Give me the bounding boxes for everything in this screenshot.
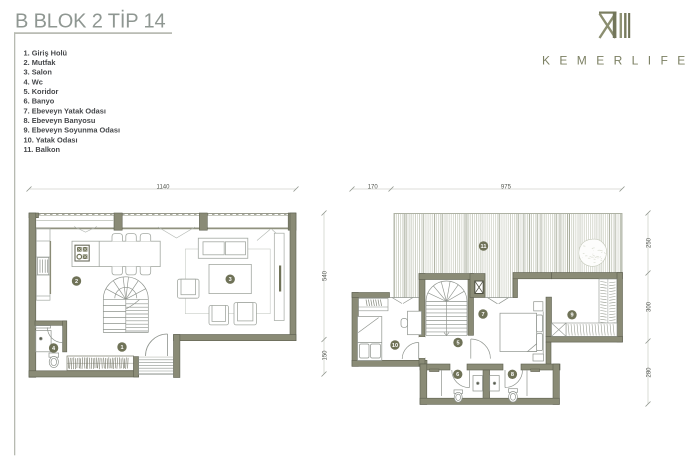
svg-text:250: 250: [646, 237, 652, 248]
svg-text:2: 2: [75, 279, 78, 285]
svg-text:5: 5: [456, 340, 459, 346]
svg-text:150: 150: [322, 350, 328, 361]
svg-text:1: 1: [120, 345, 123, 351]
svg-text:2. Mutfak: 2. Mutfak: [24, 58, 57, 67]
svg-text:6: 6: [456, 372, 459, 378]
svg-text:4. Wc: 4. Wc: [24, 77, 43, 86]
svg-text:B BLOK 2 TİP 14: B BLOK 2 TİP 14: [15, 9, 165, 32]
svg-text:9. Ebeveyn Soyunma Odası: 9. Ebeveyn Soyunma Odası: [24, 126, 121, 135]
svg-text:8. Ebeveyn Banyosu: 8. Ebeveyn Banyosu: [24, 116, 96, 125]
svg-text:3. Salon: 3. Salon: [24, 68, 53, 77]
svg-text:7. Ebeveyn Yatak Odası: 7. Ebeveyn Yatak Odası: [24, 106, 106, 115]
svg-text:300: 300: [646, 301, 652, 312]
svg-text:KEMERLIFE: KEMERLIFE: [542, 54, 695, 68]
svg-text:3: 3: [229, 277, 232, 283]
svg-text:5. Koridor: 5. Koridor: [24, 87, 59, 96]
svg-text:10. Yatak Odası: 10. Yatak Odası: [24, 135, 78, 144]
svg-text:8: 8: [511, 372, 514, 378]
svg-text:975: 975: [501, 184, 512, 190]
svg-text:7: 7: [481, 312, 484, 318]
svg-text:11: 11: [481, 244, 487, 250]
svg-text:280: 280: [646, 367, 652, 378]
svg-text:1. Giriş Holü: 1. Giriş Holü: [24, 48, 68, 57]
svg-text:9: 9: [570, 313, 573, 319]
svg-text:6. Banyo: 6. Banyo: [24, 97, 55, 106]
svg-text:11. Balkon: 11. Balkon: [24, 145, 61, 154]
svg-text:540: 540: [322, 270, 328, 281]
svg-text:170: 170: [368, 184, 379, 190]
svg-text:1140: 1140: [157, 184, 171, 190]
svg-text:10: 10: [392, 343, 398, 349]
